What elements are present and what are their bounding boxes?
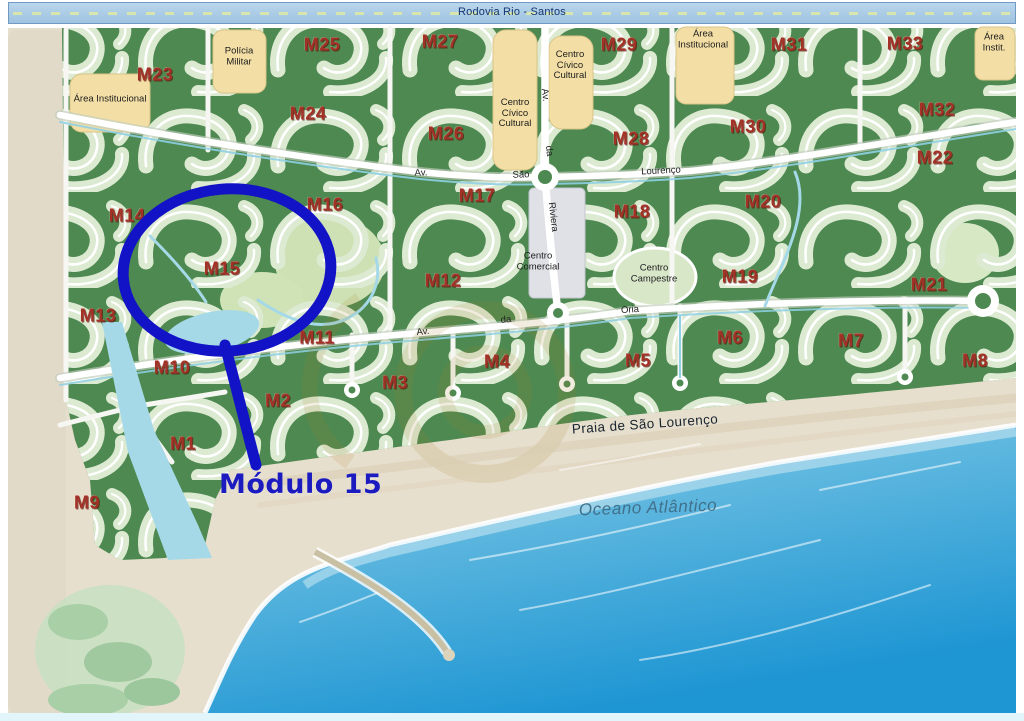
marsh (35, 585, 185, 716)
bottom-strip (0, 713, 1024, 721)
riviera-map: Rodovia Rio - Santos M1M2M3M4M5M6M7M8M9M… (0, 0, 1024, 721)
area-instit-block-far-right (975, 27, 1015, 80)
highway-band: Rodovia Rio - Santos (8, 2, 1016, 24)
centro-civico-block-left (493, 30, 537, 170)
map-terrain (0, 0, 1024, 721)
highway-label: Rodovia Rio - Santos (9, 6, 1015, 18)
area-institucional-block-ne (676, 27, 734, 104)
jetty-head (443, 649, 455, 661)
policia-militar-block (213, 30, 266, 93)
centro-campestre-block (614, 248, 696, 306)
callout-label: Módulo 15 (219, 469, 382, 500)
centro-civico-block-right (549, 36, 593, 129)
